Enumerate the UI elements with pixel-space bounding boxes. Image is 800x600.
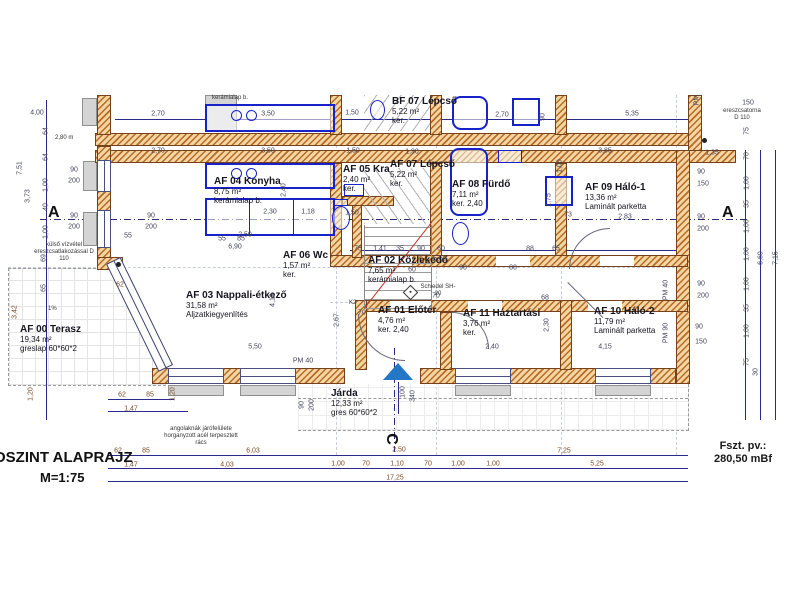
dimension-label: 1,00 [744,324,751,338]
dimension-label: 5,50 [248,344,262,351]
room-finish: kerámialap b. [214,196,281,205]
dimension-label: 2,70 [151,111,165,118]
dimension-label: PM 90 [663,323,670,343]
level-note-value: 280,50 mBf [688,453,798,465]
annotation-note: Schiedel SH-20 [420,284,456,298]
dimension-label: 70 [424,461,432,468]
dimension-label: 60 [408,267,416,274]
dimension-label: 1,35 [705,150,719,157]
neighbor-shower [512,98,540,126]
dimension-label: 90 [70,167,78,174]
dimension-label: 150 [695,339,707,346]
room-finish: Laminált parketta [585,202,646,211]
dimension-label: 65 [552,246,560,253]
room-area: 12,33 m² [331,399,377,408]
dimension-label: 55 [124,233,132,240]
floor-plan-sheet: A A C [0,0,800,600]
room-finish: ker. 2,40 [378,325,436,334]
dimension-label: 1,00 [331,461,345,468]
room-name: Járda [331,388,377,399]
room-label-af06: AF 06 Wc1,57 m²ker. [283,250,328,279]
dimension-label: 70 [358,310,366,317]
window [97,210,111,248]
dimension-label: 75 [354,246,362,253]
room-area: 2,40 m² [343,175,390,184]
window-sill [240,385,296,396]
dimension-label: 90 [147,213,155,220]
dimension-label: 90 [70,213,78,220]
room-label-af04: AF 04 Konyha8,75 m²kerámialap b. [214,176,281,205]
dimension-label: 1,00 [43,225,50,239]
annotation-note: kerámialap b. [212,95,262,102]
drawing-title: OSZINT ALAPRAJZ [0,449,133,466]
hob-icon [231,110,242,121]
room-finish: Laminált parketta [594,326,655,335]
dimension-label: 70 [362,461,370,468]
dimension-label: 200 [68,178,80,185]
wall-segment [440,312,452,370]
dimension-label: 1,50 [345,210,359,217]
dimension-label: 2,50 [238,232,252,239]
dimension-label: 85 [146,392,154,399]
dimension-label: 2,70 [495,112,509,119]
annotation-note: 1% [48,306,64,313]
dimension-label: 200 [697,293,709,300]
section-marker-a-left: A [48,204,60,222]
annotation-note: külső vízvétel ereszcsatlakozással D 110 [34,242,94,264]
dimension-label: 3,42 [12,305,19,319]
dimension-label: 1,41 [373,246,387,253]
dimension-label: 2,67 [334,313,341,327]
dimension-label: 150 [742,100,754,107]
room-label-jarda: Járda12,33 m²gres 60*60*2 [331,388,377,417]
dimension-label: 1,20 [28,387,35,401]
dimension-label: 3,73 [25,189,32,203]
window-sill [455,385,511,396]
door-swing [569,228,610,269]
washbasin [498,150,522,163]
annotation-note: ereszcsatorna D 110 [722,108,762,122]
dimension-label: 80 [509,265,517,272]
dimension-label: 85 [142,448,150,455]
window-sill [595,385,651,396]
dimension-line [108,411,188,412]
dimension-label: 1,00 [744,277,751,291]
dimension-label: 1,20 [170,387,177,401]
dimension-label: 88 [526,246,534,253]
dimension-label: 1,10 [390,461,404,468]
room-name: AF 11 Háztartási [463,308,540,319]
dimension-label: 17,25 [386,475,404,482]
window [168,368,224,384]
dimension-label: 1,00 [43,178,50,192]
dimension-label: 2,40 [485,344,499,351]
annotation-note: angolaknák járófelülete horganyzott acél… [164,426,238,448]
wall-segment [555,95,567,135]
dimension-label: 30 [753,368,760,376]
dimension-label: 75 [744,358,751,366]
dimension-label: 1,00 [451,461,465,468]
dimension-label: 7,51 [17,161,24,175]
room-finish: ker. [343,184,390,193]
room-label-af01: AF 01 Előtér4,76 m²ker. 2,40 [378,305,436,334]
room-area: 19,34 m² [20,335,81,344]
room-finish: ker. 2,40 [452,199,510,208]
downpipe-icon [702,138,707,143]
room-finish: greslap 60*60*2 [20,344,81,353]
window-sill [83,161,97,191]
dimension-label: 2,30 [263,209,277,216]
room-finish: gres 60*60*2 [331,408,377,417]
dimension-label: 90 [417,246,425,253]
dimension-label: 62 [118,392,126,399]
dimension-label: 70 [744,152,751,160]
room-name: AF 07 Lépcső [390,159,455,170]
window [595,368,651,384]
dimension-label: PM 40 [663,280,670,300]
dimension-label: 6,60 [758,251,765,265]
room-area: 4,76 m² [378,316,436,325]
annotation-note: K2 [349,300,363,307]
dimension-label: 3,50 [261,148,275,155]
room-area: 1,57 m² [283,261,328,270]
section-marker-a-right: A [722,204,734,222]
dimension-label: 4,10 [270,293,277,307]
window-sill [83,212,97,246]
dimension-label: 200 [309,399,316,411]
room-label-bf07: BF 07 Lépcső5,22 m²ker. [392,96,457,125]
drawing-scale: M=1:75 [40,470,84,485]
toilet-tank [334,199,348,206]
dimension-label: 4,03 [220,462,234,469]
dimension-label: 1,50 [345,110,359,117]
dimension-label: 5,35 [625,111,639,118]
dimension-label: 1,47 [124,406,138,413]
dimension-label: 4,15 [598,344,612,351]
dimension-label: 35 [396,246,404,253]
neighbor-kitchen-counter [205,104,335,132]
dimension-label: 65 [41,284,48,292]
dimension-label: 90 [695,324,703,331]
dimension-line [108,399,174,400]
dimension-label: 3,50 [261,111,275,118]
room-label-af00: AF 00 Terasz19,34 m²greslap 60*60*2 [20,324,81,353]
dimension-label: 2,50 [392,447,406,454]
dimension-label: 7,25 [557,448,571,455]
dimension-label: 200 [697,226,709,233]
hob-icon [246,110,257,121]
dimension-label: 1,00 [486,461,500,468]
room-area: 5,22 m² [392,107,457,116]
annotation-note: 2,80 m [55,135,85,142]
room-name: AF 10 Háló-2 [594,306,655,317]
dimension-line [108,468,688,469]
neighbor-window-sill [82,98,97,126]
dimension-label: 7,15 [773,251,780,265]
dimension-label: 1,50 [346,148,360,155]
room-label-af08: AF 08 Fürdő7,11 m²ker. 2,40 [452,179,510,208]
dimension-label: 64 [43,127,50,135]
room-finish: Aljzatkiegyenlítés [186,310,287,319]
room-area: 8,75 m² [214,187,281,196]
downpipe-icon [116,262,121,267]
dimension-label: 55 [218,236,226,243]
dimension-label: 60 [437,246,445,253]
dimension-label: 1,00 [744,219,751,233]
dimension-label: 100 [400,386,407,398]
dimension-line [760,150,761,420]
room-name: AF 04 Konyha [214,176,281,187]
dimension-label: PM [694,95,701,106]
room-name: AF 09 Háló-1 [585,182,646,193]
dimension-label: 4,00 [30,110,44,117]
wall-segment [560,300,572,370]
entry-arrow [383,363,413,380]
dimension-label: 1,00 [744,176,751,190]
dimension-label: 2,83 [618,214,632,221]
dimension-label: 90 [697,214,705,221]
dimension-label: 64 [43,153,50,161]
dimension-label: 1,75 [546,193,553,207]
dimension-label: 2,40 [281,183,288,197]
room-area: 3,76 m² [463,319,540,328]
neighbor-bathtub [452,96,488,130]
wall-segment [676,150,690,384]
dimension-label: 6,90 [228,244,242,251]
dimension-label: 340 [410,390,417,402]
dimension-label: 90 [540,113,547,121]
wall-segment [95,133,692,146]
dimension-line [775,150,776,420]
room-name: AF 06 Wc [283,250,328,261]
room-finish: ker. [463,328,540,337]
room-name: AF 00 Terasz [20,324,81,335]
room-finish: kerámialap b. [368,275,448,284]
room-label-af10: AF 10 Háló-211,79 m²Laminált parketta [594,306,655,335]
dimension-label: 200 [68,224,80,231]
dimension-label: 6,03 [246,448,260,455]
dimension-line [108,455,688,456]
room-area: 13,36 m² [585,193,646,202]
room-name: AF 08 Fürdő [452,179,510,190]
room-label-af05: AF 05 Kra2,40 m²ker. [343,164,390,193]
room-name: BF 07 Lépcső [392,96,457,107]
dimension-label: 2,30 [544,318,551,332]
dimension-label: 75 [744,127,751,135]
dimension-label: 5,25 [590,461,604,468]
room-finish: ker. [283,270,328,279]
level-note-label: Fszt. pv.: [688,440,798,452]
dimension-label: 90 [459,265,467,272]
bathroom-toilet [452,222,469,245]
room-finish: ker. [390,179,455,188]
dimension-label: 35 [744,200,751,208]
dimension-label: 5,50 [433,256,447,263]
room-area: 11,79 m² [594,317,655,326]
dimension-label: 3,85 [598,148,612,155]
room-label-af07: AF 07 Lépcső5,22 m²ker. [390,159,455,188]
dimension-label: 90 [697,169,705,176]
dimension-label: 200 [145,224,157,231]
room-label-af11: AF 11 Háztartási3,76 m²ker. [463,308,540,337]
dimension-label: 1,18 [301,209,315,216]
room-name: AF 01 Előtér [378,305,436,316]
dimension-label: 62 [116,282,124,289]
room-finish: ker. [392,116,457,125]
dimension-label: 35 [744,304,751,312]
dimension-label: 2,70 [151,148,165,155]
dimension-label: 150 [697,181,709,188]
room-name: AF 05 Kra [343,164,390,175]
dimension-label: 68 [541,295,549,302]
dimension-label: 1,00 [557,159,564,173]
window [240,368,296,384]
room-label-af09: AF 09 Háló-113,36 m²Laminált parketta [585,182,646,211]
dimension-label: 73 [564,212,572,219]
room-area: 7,11 m² [452,190,510,199]
neighbor-toilet [370,100,385,120]
window [97,160,111,192]
dimension-label: 1,00 [744,247,751,261]
dimension-label: PM 40 [293,358,313,365]
dimension-label: 90 [299,401,306,409]
section-marker-c: C [382,433,400,445]
wall-segment [97,95,111,135]
window [455,368,511,384]
dimension-label: 1,90 [405,149,419,156]
dimension-label: 90 [697,281,705,288]
room-area: 5,22 m² [390,170,455,179]
